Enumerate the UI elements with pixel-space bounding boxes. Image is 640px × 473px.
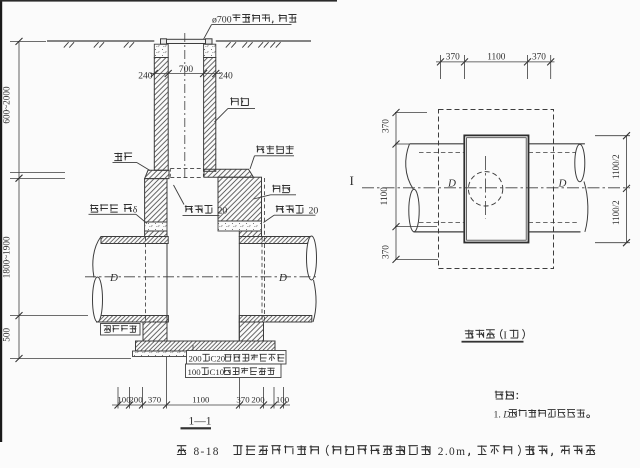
svg-text:370: 370 (446, 52, 460, 62)
svg-text:100: 100 (276, 395, 290, 405)
svg-text:700: 700 (179, 65, 194, 75)
svg-text:8-18: 8-18 (194, 446, 220, 458)
svg-text:370: 370 (382, 119, 392, 133)
svg-text:1800~1900: 1800~1900 (2, 236, 12, 278)
svg-text:2.0m: 2.0m (438, 446, 467, 458)
svg-text:D: D (278, 272, 287, 284)
svg-text:200: 200 (251, 395, 265, 405)
svg-text:240: 240 (219, 72, 234, 82)
svg-text:D: D (109, 272, 118, 284)
svg-text:100: 100 (188, 367, 202, 377)
svg-text:200: 200 (129, 395, 143, 405)
svg-text:600~2000: 600~2000 (2, 86, 12, 124)
svg-text:1—1: 1—1 (189, 416, 212, 428)
svg-text:1100: 1100 (192, 395, 210, 405)
svg-text:D: D (502, 410, 510, 421)
svg-text:D: D (558, 178, 567, 190)
svg-text:ø700: ø700 (212, 15, 232, 26)
svg-text:D: D (447, 178, 456, 190)
svg-text:370: 370 (236, 395, 250, 405)
svg-text:240: 240 (138, 72, 153, 82)
svg-text:1.: 1. (494, 410, 501, 421)
svg-text:20: 20 (218, 206, 228, 217)
svg-text:1100: 1100 (487, 52, 506, 62)
svg-text:1100/2: 1100/2 (611, 200, 621, 225)
svg-text:370: 370 (532, 52, 546, 62)
svg-text:C20: C20 (211, 354, 226, 364)
svg-text:370: 370 (148, 395, 162, 405)
svg-text:370: 370 (382, 245, 392, 259)
svg-text:200: 200 (189, 354, 203, 364)
svg-text:1100: 1100 (380, 187, 390, 206)
svg-text:I: I (350, 173, 354, 188)
svg-text:I: I (503, 331, 507, 342)
svg-text:1100/2: 1100/2 (611, 154, 621, 179)
svg-text:C10: C10 (210, 367, 225, 377)
svg-text:500: 500 (2, 328, 12, 342)
